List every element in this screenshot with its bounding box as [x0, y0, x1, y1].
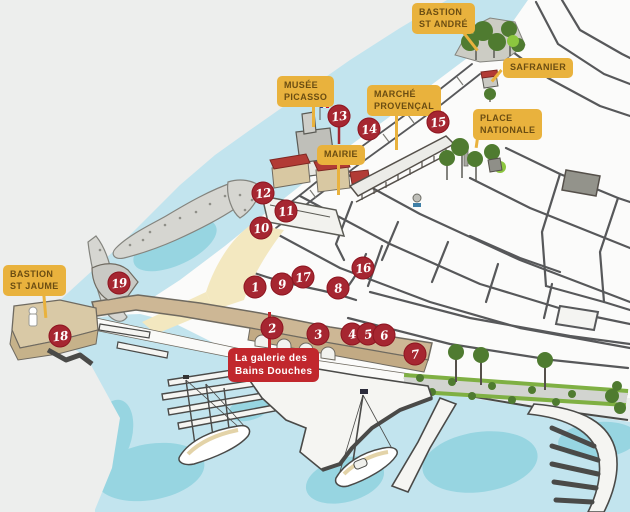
- label-marche-provencal-line: MARCHÉ: [374, 89, 434, 101]
- label-tail-mairie: [337, 160, 340, 195]
- label-galerie-bains-douches: La galerie desBains Douches: [228, 348, 319, 382]
- label-bastion-st-andre: BASTIONST ANDRÉ: [412, 3, 475, 34]
- label-mairie: MAIRIE: [317, 145, 365, 165]
- label-mairie-line: MAIRIE: [324, 149, 358, 161]
- label-bastion-st-jaume-line: BASTION: [10, 269, 59, 281]
- label-musee-picasso-line: MUSÉE: [284, 80, 327, 92]
- label-musee-picasso-line: PICASSO: [284, 92, 327, 104]
- label-musee-picasso: MUSÉEPICASSO: [277, 76, 334, 107]
- label-galerie-bains-douches-line: Bains Douches: [235, 365, 312, 378]
- label-place-nationale-line: PLACE: [480, 113, 535, 125]
- label-place-nationale: PLACENATIONALE: [473, 109, 542, 140]
- label-bastion-st-andre-line: BASTION: [419, 7, 468, 19]
- label-marche-provencal: MARCHÉPROVENÇAL: [367, 85, 441, 116]
- label-safranier: SAFRANIER: [503, 58, 573, 78]
- label-bastion-st-andre-line: ST ANDRÉ: [419, 19, 468, 31]
- label-marche-provencal-line: PROVENÇAL: [374, 101, 434, 113]
- label-galerie-bains-douches-line: La galerie des: [235, 352, 312, 365]
- antibes-illustrated-map: BASTIONST ANDRÉSAFRANIERMUSÉEPICASSOMARC…: [0, 0, 630, 512]
- label-bastion-st-jaume: BASTIONST JAUME: [3, 265, 66, 296]
- label-bastion-st-jaume-line: ST JAUME: [10, 281, 59, 293]
- label-safranier-line: SAFRANIER: [510, 62, 566, 74]
- label-place-nationale-line: NATIONALE: [480, 125, 535, 137]
